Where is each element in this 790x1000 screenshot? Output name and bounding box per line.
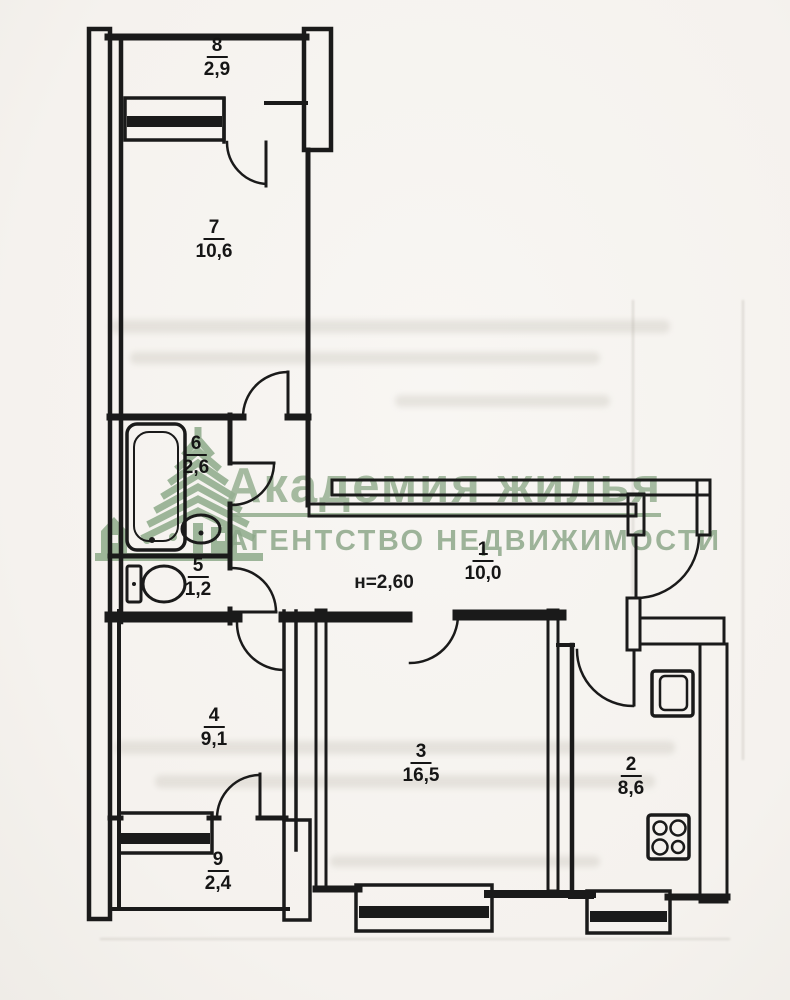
room-number: 6 — [186, 434, 207, 456]
room-label-6: 6 2,6 — [183, 434, 209, 479]
room-label-3: 3 16,5 — [403, 742, 440, 787]
room-area: 2,6 — [183, 457, 209, 479]
door-room-7 — [243, 372, 288, 417]
room-area: 2,9 — [204, 59, 230, 81]
room-number: 5 — [188, 556, 209, 578]
bathtub-icon — [127, 424, 185, 550]
door-bathroom-6 — [232, 463, 274, 505]
room-label-1: 1 10,0 — [465, 540, 502, 585]
room-label-7: 7 10,6 — [196, 218, 233, 263]
fixtures — [127, 424, 693, 859]
door-entrance — [636, 535, 699, 598]
room-number: 4 — [204, 706, 225, 728]
door-balcony-9 — [217, 774, 260, 818]
room-number: 7 — [204, 218, 225, 240]
room-number: 9 — [208, 850, 229, 872]
door-room-4 — [237, 623, 284, 670]
room-area: 10,6 — [196, 241, 233, 263]
fridge-icon — [652, 671, 693, 716]
room-label-8: 8 2,9 — [204, 36, 230, 81]
room-number: 1 — [473, 540, 494, 562]
door-kitchen — [577, 650, 634, 706]
room-area: 1,2 — [185, 579, 211, 601]
room-label-2: 2 8,6 — [618, 755, 644, 800]
ceiling-height-note: н=2,60 — [354, 572, 414, 594]
room-area: 16,5 — [403, 765, 440, 787]
room-area: 8,6 — [618, 778, 644, 800]
room-area: 2,4 — [205, 873, 231, 895]
floor-plan-drawing — [0, 0, 790, 1000]
sink-icon — [182, 515, 220, 543]
door-room-3 — [410, 615, 458, 663]
doors — [217, 99, 699, 818]
room-number: 2 — [621, 755, 642, 777]
door-wc-5 — [232, 568, 276, 612]
window-kitchen — [587, 891, 670, 933]
window-room-4 — [119, 813, 212, 853]
toilet-icon — [127, 566, 185, 602]
room-label-5: 5 1,2 — [185, 556, 211, 601]
room-number: 8 — [207, 36, 228, 58]
window-balcony-8 — [125, 98, 224, 140]
room-area: 9,1 — [201, 729, 227, 751]
room-label-4: 4 9,1 — [201, 706, 227, 751]
door-balcony-8 — [224, 99, 306, 186]
room-label-9: 9 2,4 — [205, 850, 231, 895]
stove-icon — [648, 815, 689, 859]
room-number: 3 — [411, 742, 432, 764]
room-area: 10,0 — [465, 563, 502, 585]
window-room-3 — [356, 885, 492, 931]
scanned-paper-background: Академия жилья АГЕНТСТВО НЕДВИЖИМОСТИ — [0, 0, 790, 1000]
